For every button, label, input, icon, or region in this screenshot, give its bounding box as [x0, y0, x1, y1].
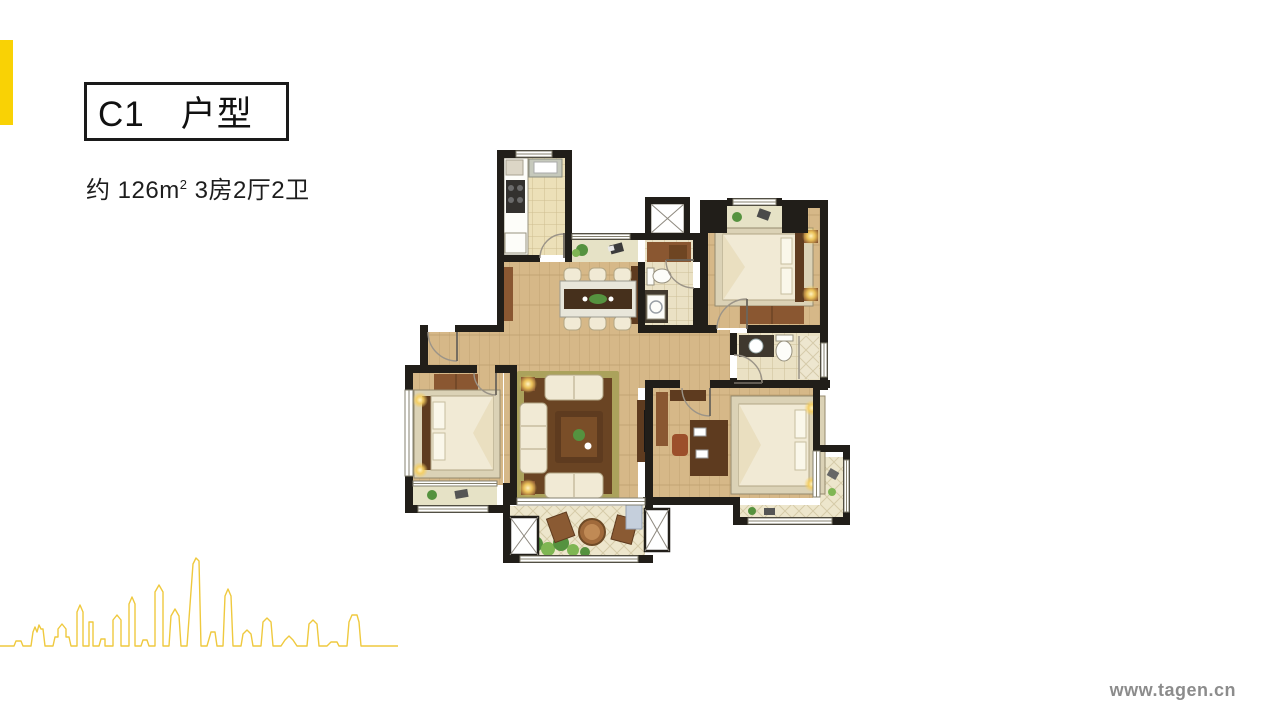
- title-box: C1 户型: [84, 82, 289, 141]
- accent-bar: [0, 40, 13, 125]
- floor-plan-image: [400, 140, 855, 565]
- city-skyline-graphic: [0, 550, 400, 658]
- watermark: www.tagen.cn: [1110, 680, 1236, 701]
- page-title: C1 户型: [98, 86, 253, 137]
- utility-shaft: [651, 204, 684, 233]
- area-note: 约 126m2 3房2厅2卫: [86, 170, 310, 205]
